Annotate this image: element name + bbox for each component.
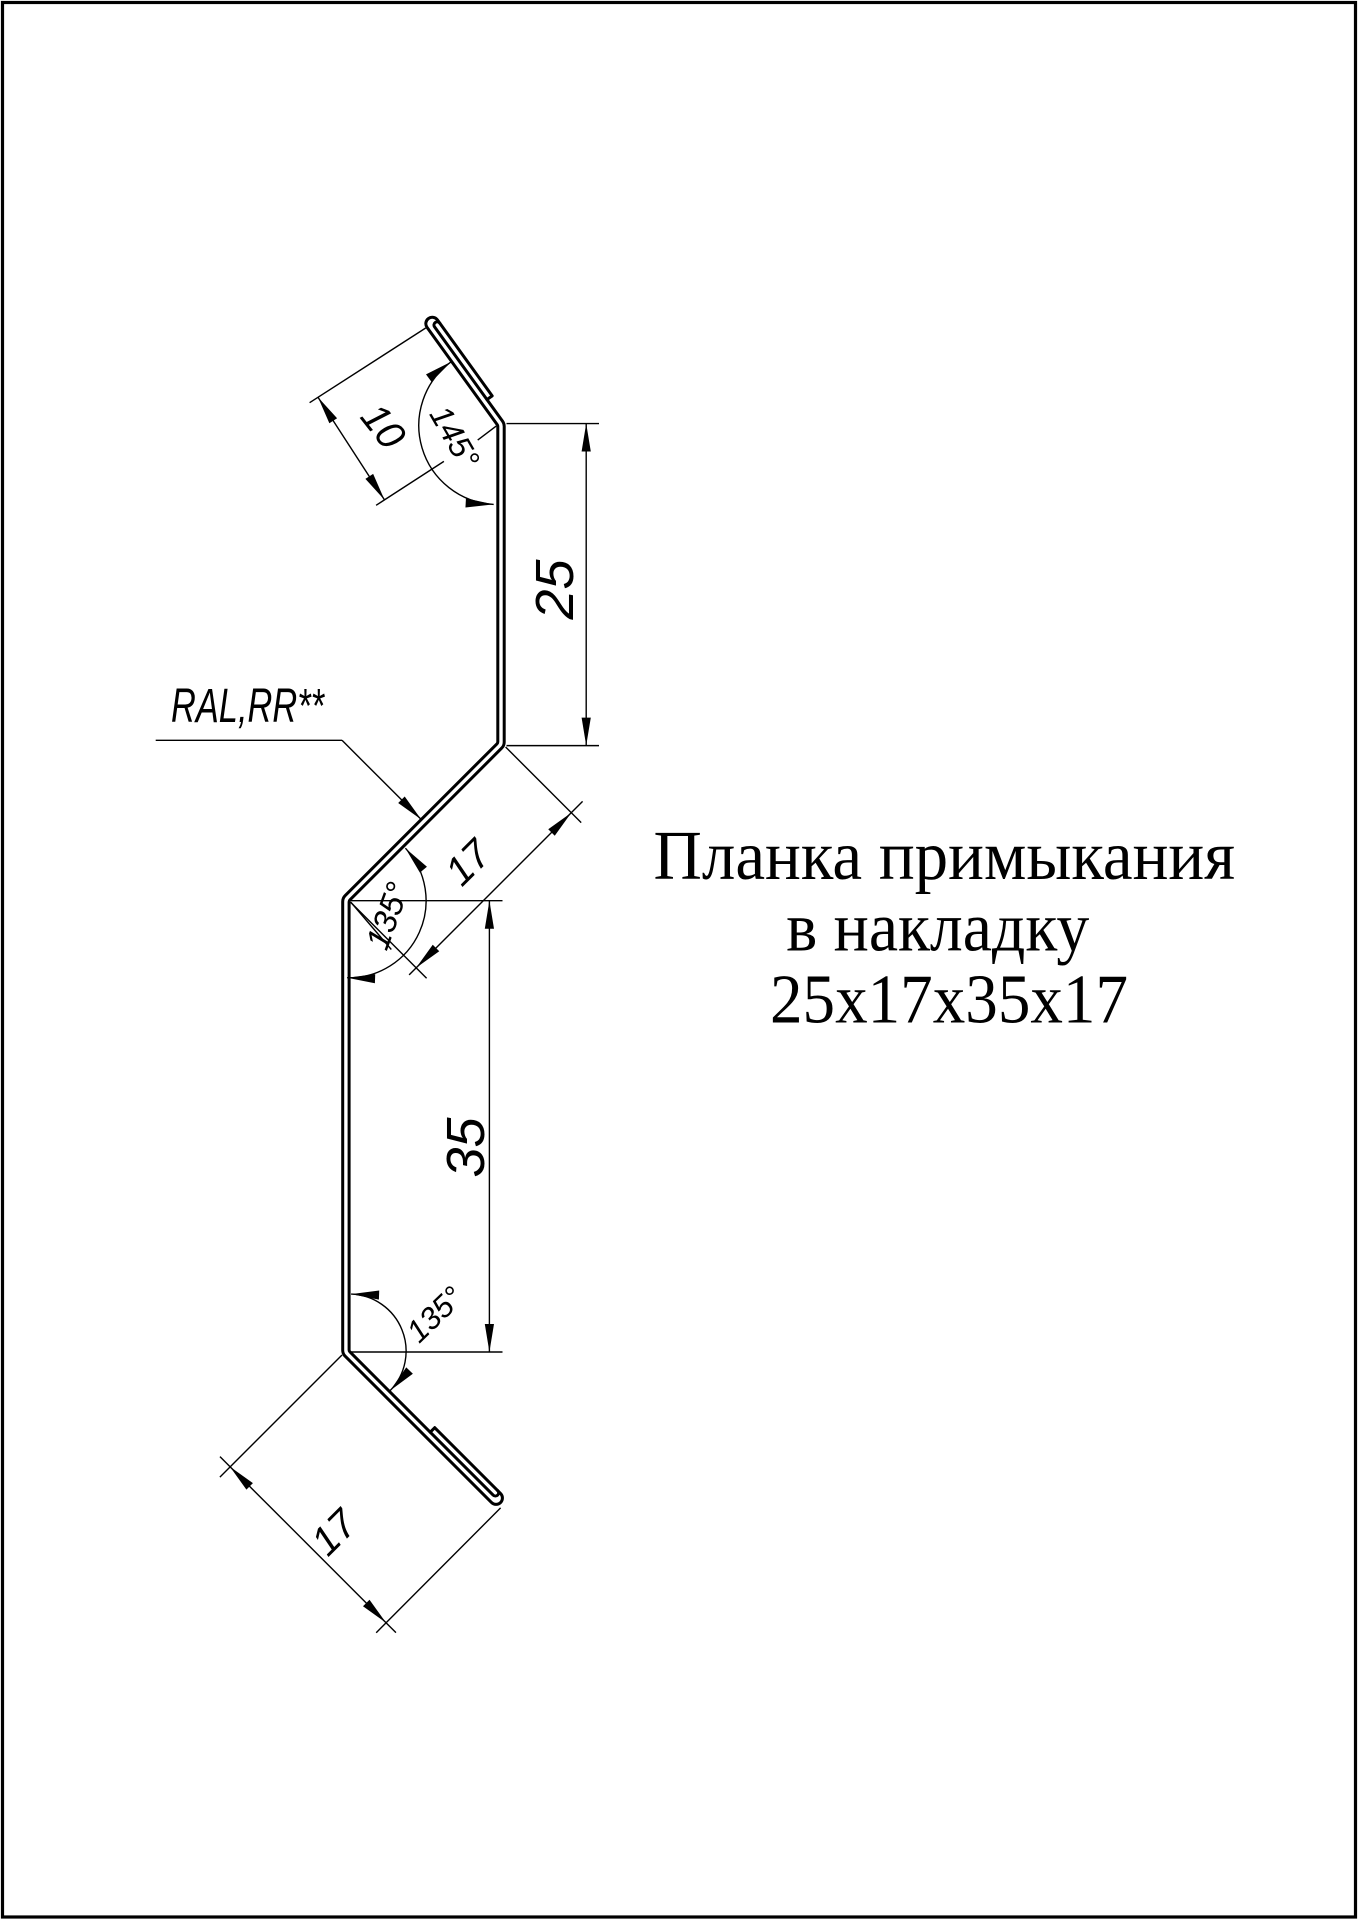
svg-text:17: 17 <box>437 830 501 894</box>
svg-text:135°: 135° <box>358 877 416 954</box>
svg-text:RAL,RR**: RAL,RR** <box>171 680 325 733</box>
svg-text:135°: 135° <box>400 1279 470 1349</box>
svg-text:145°: 145° <box>423 399 487 474</box>
svg-text:Планка примыкания: Планка примыкания <box>654 818 1236 895</box>
svg-text:17: 17 <box>303 1500 367 1564</box>
svg-text:25x17x35x17: 25x17x35x17 <box>770 961 1128 1038</box>
svg-text:в накладку: в накладку <box>786 890 1089 967</box>
svg-text:25: 25 <box>525 559 585 621</box>
svg-text:35: 35 <box>436 1117 496 1178</box>
svg-text:10: 10 <box>352 395 414 457</box>
